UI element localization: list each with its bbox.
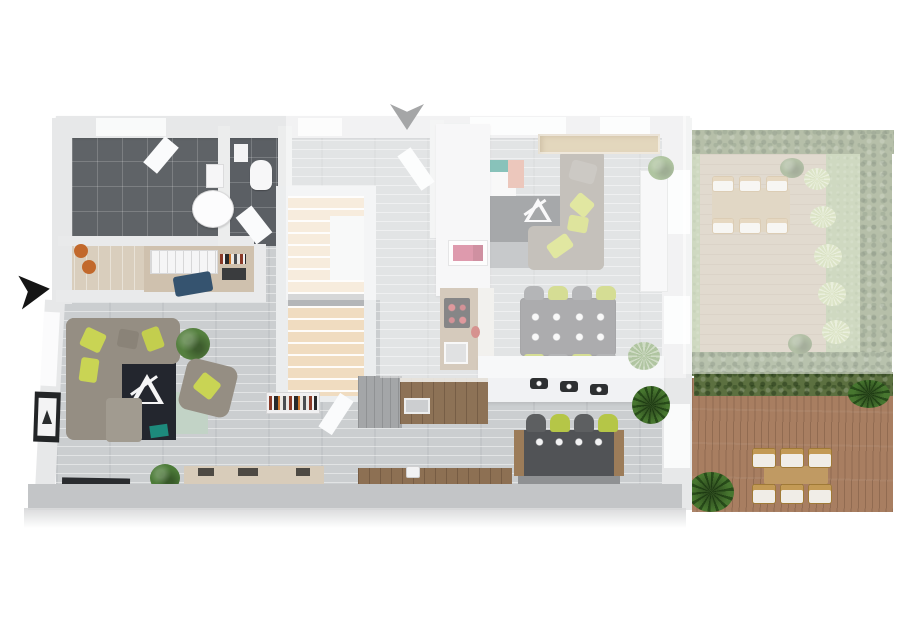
bench-object [296,468,310,476]
fade-overlay-mid [380,300,686,378]
bathroom-basin [234,144,248,162]
bookshelf-books [269,396,317,410]
wall-office-stub [252,244,266,302]
deck-chair [752,484,776,504]
utility-sink [206,164,224,188]
spotlight-icon [530,378,548,389]
office-tray [222,268,246,280]
dining-chair-lower [574,414,594,432]
office-stool [74,244,88,258]
deck-chair [808,448,832,468]
spotlight-icon [590,384,608,395]
sofa-pillow-gray [117,328,140,349]
living-plant [176,328,210,360]
dining-lower-plates [528,434,610,450]
deck-fern-right [848,380,890,408]
sofa-pillow-lime [78,357,99,383]
deck-chair [780,484,804,504]
left-wall-upper [52,118,72,304]
deck-chair [752,448,776,468]
stair-flight-lower [288,306,364,396]
wall-bath-left [218,126,230,250]
kitchen-sink [404,398,430,414]
bottom-wall-outer [24,508,686,528]
dining-chair-lower [598,414,618,432]
floorplan-canvas [0,0,900,635]
spotlight-icon [560,381,578,392]
fade-overlay-garden [683,104,895,374]
office-stool [82,260,96,274]
floorplan-scene [0,0,900,635]
deck-table [764,466,828,484]
deck-fern-left [688,472,734,512]
bottom-wall [28,484,682,510]
deck-chair [808,484,832,504]
bathroom-toilet [250,160,272,190]
living-rug-teal [149,424,168,438]
sofa-chaise [106,398,142,442]
dining-chair-lower [550,414,570,432]
bench-object [198,468,214,476]
dining-chair-lower [526,414,546,432]
office-books [220,254,246,264]
fade-overlay-upper [286,104,686,300]
sideboard-cup [406,466,420,478]
top-window [96,118,166,136]
interior-plant-leafy [632,386,670,424]
utility-round-appliance [192,190,234,228]
kitchen-cabinet-gray [358,376,402,428]
bench-object [238,468,258,476]
deck-chair [780,448,804,468]
